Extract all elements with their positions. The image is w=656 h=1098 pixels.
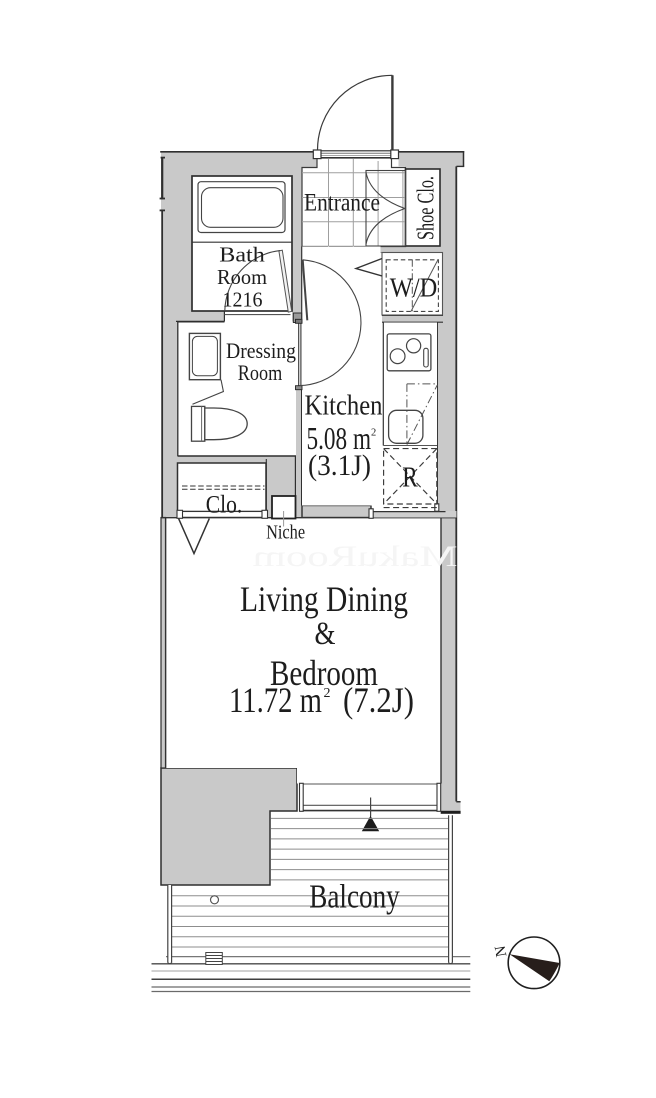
svg-text:11.72 m: 11.72 m	[229, 680, 322, 720]
svg-text:2: 2	[371, 428, 376, 439]
svg-text:(3.1J): (3.1J)	[308, 449, 371, 482]
svg-text:Shoe Clo.: Shoe Clo.	[414, 176, 440, 240]
svg-text:Living Dining: Living Dining	[240, 579, 408, 619]
svg-text:Kitchen: Kitchen	[305, 389, 383, 421]
svg-text:(7.2J): (7.2J)	[343, 680, 414, 720]
svg-text:Clo.: Clo.	[206, 491, 243, 518]
svg-text:&: &	[315, 616, 336, 652]
svg-text:Entrance: Entrance	[304, 190, 380, 217]
svg-text:MakuRoom: MakuRoom	[253, 540, 458, 573]
svg-text:Room: Room	[217, 265, 267, 289]
svg-text:R: R	[402, 463, 418, 494]
svg-text:2: 2	[324, 686, 331, 701]
svg-text:Bath: Bath	[219, 242, 265, 266]
svg-text:Balcony: Balcony	[309, 879, 400, 916]
svg-text:W/D: W/D	[390, 273, 438, 303]
svg-text:1216: 1216	[223, 287, 263, 311]
svg-text:Room: Room	[238, 360, 283, 385]
